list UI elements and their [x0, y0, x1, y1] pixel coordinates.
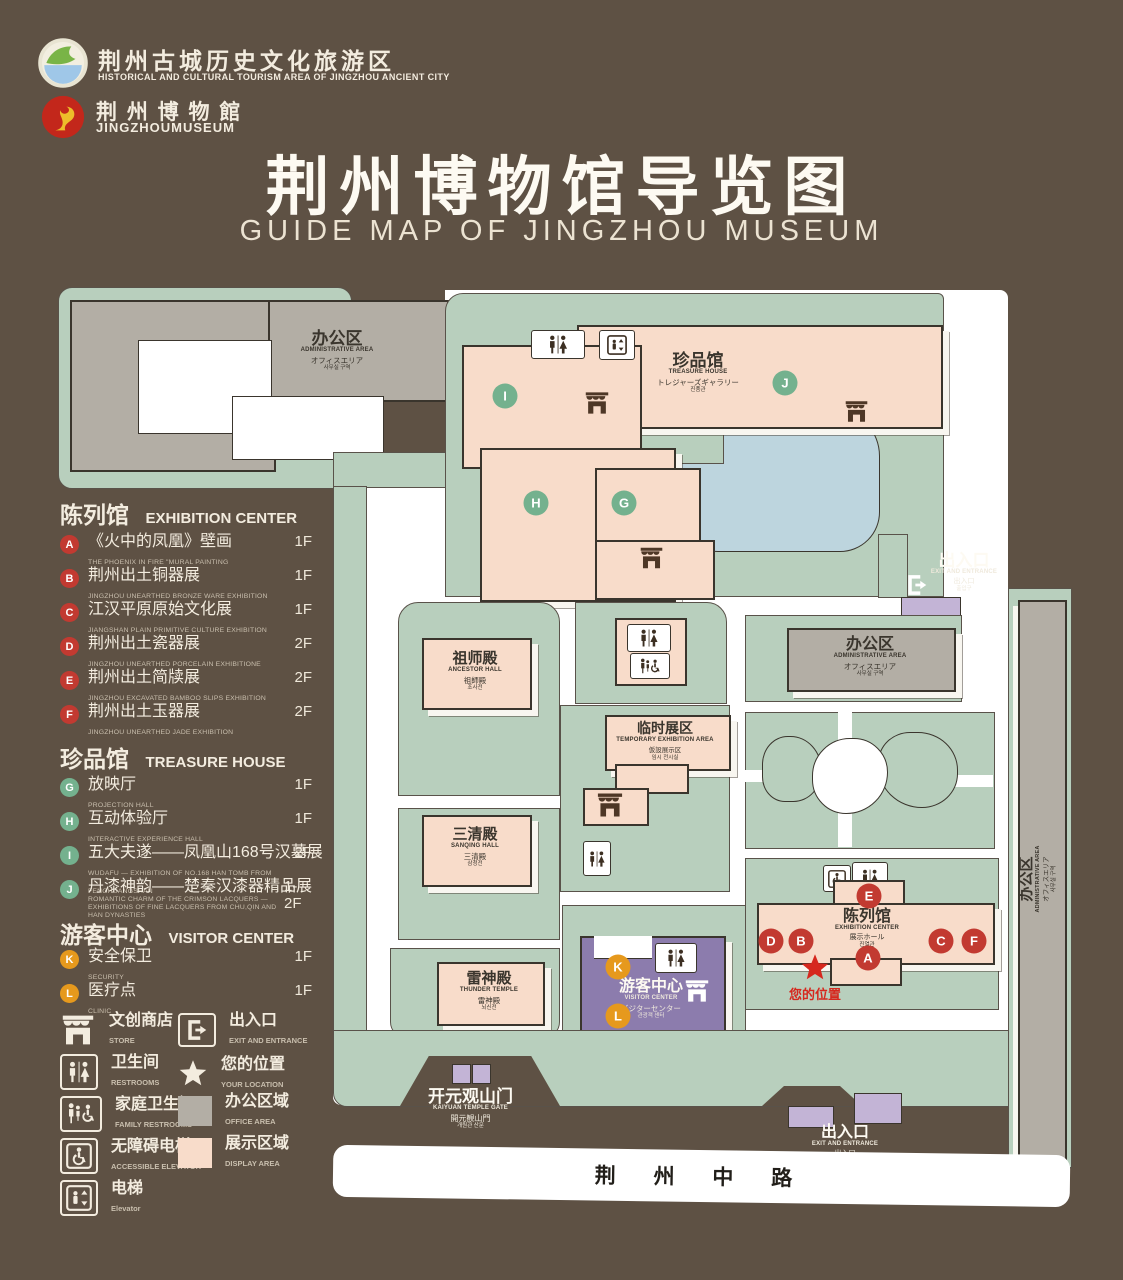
badge-a: A [60, 535, 79, 554]
legend-item-f: F 荆州出土玉器展 JINGZHOU UNEARTHED JADE EXHIBI… [60, 703, 312, 739]
store-icon [639, 546, 664, 570]
treasure-house-label: 珍品馆 TREASURE HOUSE トレジャーズギャラリー 진품관 [636, 352, 760, 394]
badge-i: I [60, 846, 79, 865]
temporary-exhibition-label: 临时展区 TEMPORARY EXHIBITION AREA 仮設展示区 임시 … [600, 720, 730, 762]
floor-label: 1F [288, 982, 312, 999]
store-icon [596, 792, 624, 818]
sanqing-hall-label: 三清殿 SANQING HALL 三清殿 삼청전 [422, 826, 528, 868]
museum-logo [40, 94, 86, 140]
marker-e: E [857, 884, 882, 909]
floor-label: 2F [288, 635, 312, 652]
elevator-icon [607, 335, 627, 355]
legend-treasure-house-heading: 珍品馆 TREASURE HOUSE [60, 740, 285, 774]
item-en: INTERACTIVE EXPERIENCE HALL [88, 836, 203, 843]
legend-item-h: H 互动体验厅 INTERACTIVE EXPERIENCE HALL 1F [60, 810, 312, 846]
admin-nw-label: 办公区 ADMINISTRATIVE AREA オフィスエリア 사무실 구역 [258, 330, 416, 372]
item-zh: 五大夫遂——凤凰山168号汉墓展 [88, 844, 323, 861]
badge-c: C [60, 603, 79, 622]
item-en: SECURITY [88, 974, 124, 981]
item-zh: 荆州出土简牍展 [88, 669, 200, 686]
marker-i: I [493, 384, 518, 409]
section-title-en: TREASURE HOUSE [145, 754, 285, 771]
marker-c: C [929, 929, 954, 954]
legend-office-area: 办公区域OFFICE AREA [178, 1093, 289, 1129]
marker-b: B [789, 929, 814, 954]
restrooms-plate [627, 624, 671, 652]
legend-item-a: A 《火中的凤凰》壁画 THE PHOENIX IN FIRE "MURAL P… [60, 533, 312, 569]
floor-label: 1F [288, 533, 312, 550]
item-zh: 荆州出土玉器展 [88, 703, 200, 720]
marker-l: L [606, 1004, 631, 1029]
item-en: JINGZHOU EXCAVATED BAMBOO SLIPS EXHIBITI… [88, 695, 266, 702]
legend-item-e: E 荆州出土简牍展 JINGZHOU EXCAVATED BAMBOO SLIP… [60, 669, 312, 705]
legend-item-d: D 荆州出土瓷器展 JINGZHOU UNEARTHED PORCELAIN E… [60, 635, 312, 671]
item-zh: 荆州出土铜器展 [88, 567, 200, 584]
badge-l: L [60, 984, 79, 1003]
floor-label: 2F [288, 703, 312, 720]
entrance-canopy [854, 1093, 902, 1124]
item-en: JIANGSHAN PLAIN PRIMITIVE CULTURE EXHIBI… [88, 627, 267, 634]
symbol-en: RESTROOMS [111, 1078, 159, 1087]
ancestor-hall-label: 祖师殿 ANCESTOR HALL 祖師殿 조사전 [422, 650, 528, 692]
badge-f: F [60, 705, 79, 724]
legend-elevator: 电梯Elevator [60, 1180, 143, 1216]
badge-b: B [60, 569, 79, 588]
gate-pillar [472, 1064, 491, 1084]
item-en: PROJECTION HALL [88, 802, 154, 809]
restrooms-plate [583, 841, 611, 876]
marker-j: J [773, 371, 798, 396]
elevator-plate [599, 330, 635, 360]
office-area-swatch [178, 1096, 212, 1126]
floor-label: 1F [288, 567, 312, 584]
display-area-swatch [178, 1138, 212, 1168]
location-star-icon [178, 1060, 208, 1088]
marker-h: H [524, 491, 549, 516]
admin-east-label: 办公区 ADMINISTRATIVE AREA オフィスエリア 사무실 구역 [795, 636, 945, 678]
location-star-icon [800, 954, 830, 982]
gate-pillar [452, 1064, 471, 1084]
restrooms-icon [546, 335, 570, 354]
restrooms-icon [638, 629, 660, 647]
badge-h: H [60, 812, 79, 831]
section-title-en: VISITOR CENTER [168, 930, 294, 947]
symbol-en: EXIT AND ENTRANCE [229, 1036, 307, 1045]
section-title-zh: 珍品馆 [60, 740, 129, 774]
restrooms-plate [531, 330, 585, 359]
item-zh: 《火中的凤凰》壁画 [88, 533, 232, 550]
badge-k: K [60, 950, 79, 969]
item-en: THE PHOENIX IN FIRE "MURAL PAINTING [88, 559, 228, 566]
legend-exit: 出入口EXIT AND ENTRANCE [178, 1012, 307, 1048]
legend-display-area: 展示区域DISPLAY AREA [178, 1135, 289, 1171]
family-restroom-icon [638, 658, 662, 675]
kaiyuan-gate-label: 开元观山门 KAIYUAN TEMPLE GATE 開元観山門 개원관 산문 [398, 1088, 543, 1130]
symbol-en: Elevator [111, 1204, 141, 1213]
store-icon [584, 391, 610, 415]
restrooms-icon [665, 949, 687, 967]
item-en: JINGZHOU UNEARTHED BRONZE WARE EXHIBITIO… [88, 593, 268, 600]
elevator-icon [60, 1180, 98, 1216]
family-restroom-icon [60, 1096, 102, 1132]
exhibition-center-label: 陈列馆 EXHIBITION CENTER 展示ホール 진열관 [807, 908, 927, 949]
symbol-en: OFFICE AREA [225, 1117, 276, 1126]
item-zh: 安全保卫 [88, 948, 152, 965]
section-title-zh: 游客中心 [60, 916, 152, 950]
west-lawn-strip [333, 486, 367, 1036]
floor-label: 1F [288, 601, 312, 618]
item-zh: 江汉平原原始文化展 [88, 601, 232, 618]
item-en: JINGZHOU UNEARTHED JADE EXHIBITION [88, 729, 233, 736]
symbol-zh: 办公区域 [225, 1093, 289, 1110]
symbol-en: YOUR LOCATION [221, 1080, 283, 1089]
garden-path [838, 813, 852, 847]
tourism-area-name: 荆州古城历史文化旅游区 [98, 42, 395, 76]
marker-g: G [612, 491, 637, 516]
badge-g: G [60, 778, 79, 797]
tourism-area-name-en: HISTORICAL AND CULTURAL TOURISM AREA OF … [98, 72, 450, 82]
legend-item-k: K 安全保卫 SECURITY 1F [60, 948, 312, 984]
road: 荆 州 中 路 [333, 1145, 1071, 1207]
badge-e: E [60, 671, 79, 690]
legend-exhibition-center-heading: 陈列馆 EXHIBITION CENTER [60, 496, 297, 530]
marker-k: K [606, 955, 631, 980]
legend-store: 文创商店STORE [60, 1012, 173, 1048]
floor-label: 1-2F [278, 878, 312, 912]
page-subtitle: GUIDE MAP OF JINGZHOU MUSEUM [0, 215, 1123, 248]
symbol-zh: 出入口 [229, 1012, 277, 1029]
legend-item-g: G 放映厅 PROJECTION HALL 1F [60, 776, 312, 812]
symbol-zh: 电梯 [111, 1180, 143, 1197]
symbol-zh: 展示区域 [225, 1135, 289, 1152]
section-title-en: EXHIBITION CENTER [145, 510, 297, 527]
legend-item-c: C 江汉平原原始文化展 JIANGSHAN PLAIN PRIMITIVE CU… [60, 601, 312, 637]
floor-label: 1F [288, 776, 312, 793]
thunder-temple-label: 雷神殿 THUNDER TEMPLE 雷神殿 뇌신전 [437, 970, 541, 1012]
symbol-zh: 您的位置 [221, 1056, 285, 1073]
your-location-label: 您的位置 [772, 984, 858, 1003]
store-icon [844, 399, 869, 424]
floor-label: 2F [288, 669, 312, 686]
museum-name-en: JINGZHOUMUSEUM [96, 120, 235, 135]
symbol-en: STORE [109, 1036, 135, 1045]
legend-family-restrooms: 家庭卫生间FAMILY RESTROOMS [60, 1096, 195, 1132]
ne-lawn [878, 534, 908, 598]
floor-label: 1F [288, 948, 312, 965]
marker-f: F [962, 929, 987, 954]
accessible-elevator-icon [60, 1138, 98, 1174]
legend-visitor-center-heading: 游客中心 VISITOR CENTER [60, 916, 294, 950]
guide-map-poster: 荆州古城历史文化旅游区 HISTORICAL AND CULTURAL TOUR… [0, 0, 1123, 1280]
store-icon [684, 977, 710, 1005]
item-zh: 荆州出土瓷器展 [88, 635, 200, 652]
symbol-en: DISPLAY AREA [225, 1159, 280, 1168]
marker-a: A [856, 946, 881, 971]
marker-d: D [759, 929, 784, 954]
legend-your-location: 您的位置YOUR LOCATION [178, 1056, 285, 1092]
section-title-zh: 陈列馆 [60, 496, 129, 530]
floor-label: 1F [288, 810, 312, 827]
item-zh: 医疗点 [88, 982, 136, 999]
item-zh: 放映厅 [88, 776, 136, 793]
restrooms-plate [655, 943, 697, 973]
symbol-zh: 卫生间 [111, 1054, 159, 1071]
exit-ne-label: 出入口 EXIT AND ENTRANCE 出入口 출입구 [912, 552, 1016, 593]
restrooms-icon [587, 851, 607, 867]
floor-label: 2F [288, 844, 312, 861]
exit-icon [178, 1013, 216, 1047]
legend-restrooms: 卫生间RESTROOMS [60, 1054, 159, 1090]
admin-strip-label: 办公区 ADMINISTRATIVE AREA オフィスエリア 사무실 구역 [1018, 774, 1064, 984]
item-en: JINGZHOU UNEARTHED PORCELAIN EXHIBITIONE [88, 661, 261, 668]
road-label: 荆 州 中 路 [595, 1160, 809, 1193]
store-icon [60, 1014, 96, 1046]
tourism-area-logo [38, 38, 88, 88]
item-zh: 互动体验厅 [88, 810, 168, 827]
badge-d: D [60, 637, 79, 656]
restrooms-icon [60, 1054, 98, 1090]
courtyard [232, 396, 384, 460]
legend-item-b: B 荆州出土铜器展 JINGZHOU UNEARTHED BRONZE WARE… [60, 567, 312, 603]
badge-j: J [60, 880, 79, 899]
symbol-zh: 文创商店 [109, 1012, 173, 1029]
family-restroom-plate [630, 653, 670, 679]
